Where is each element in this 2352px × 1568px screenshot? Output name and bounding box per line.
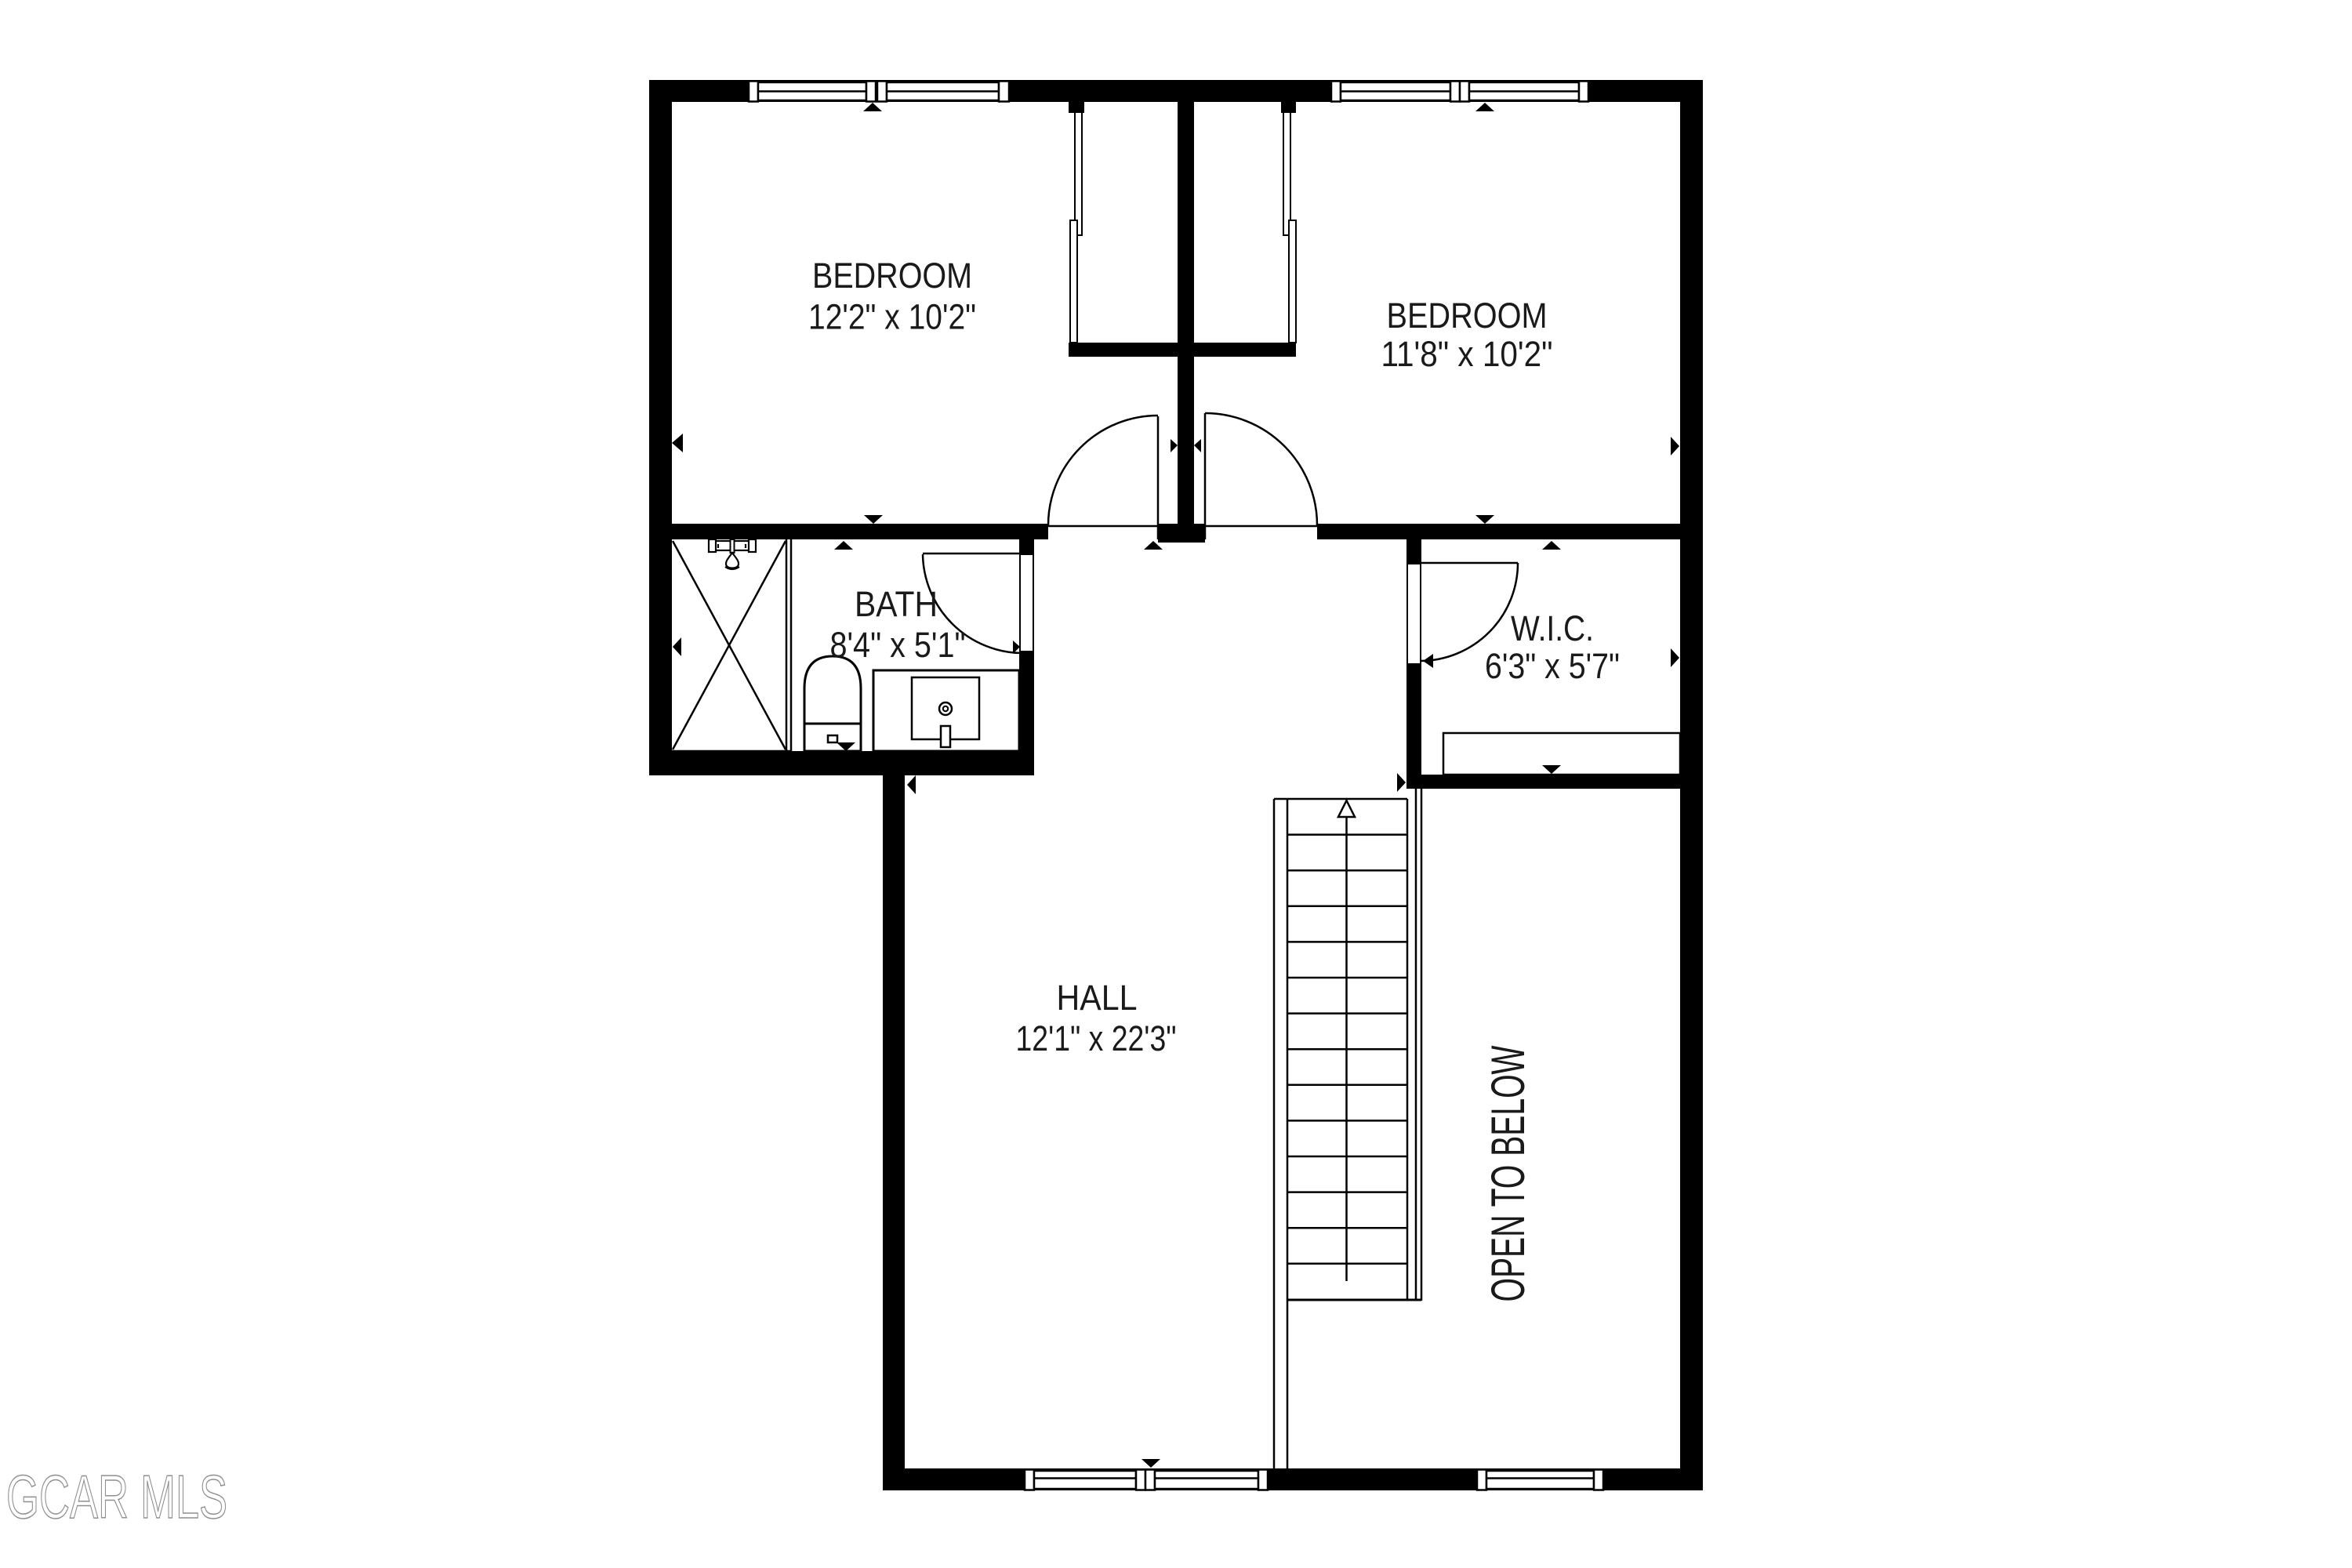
svg-text:OPEN TO BELOW: OPEN TO BELOW [1482, 1045, 1534, 1301]
svg-text:GCAR MLS: GCAR MLS [6, 1462, 227, 1531]
svg-text:BEDROOM: BEDROOM [1387, 296, 1548, 336]
svg-text:BATH: BATH [855, 584, 938, 624]
svg-text:8'4" x 5'1": 8'4" x 5'1" [830, 625, 966, 665]
svg-text:BEDROOM: BEDROOM [812, 256, 972, 296]
svg-text:12'2" x 10'2": 12'2" x 10'2" [808, 297, 976, 337]
svg-text:HALL: HALL [1057, 978, 1138, 1018]
svg-text:6'3" x 5'7": 6'3" x 5'7" [1485, 646, 1620, 686]
svg-text:12'1" x 22'3": 12'1" x 22'3" [1016, 1018, 1177, 1058]
svg-text:W.I.C.: W.I.C. [1511, 608, 1594, 648]
svg-text:11'8" x 10'2": 11'8" x 10'2" [1381, 334, 1553, 374]
